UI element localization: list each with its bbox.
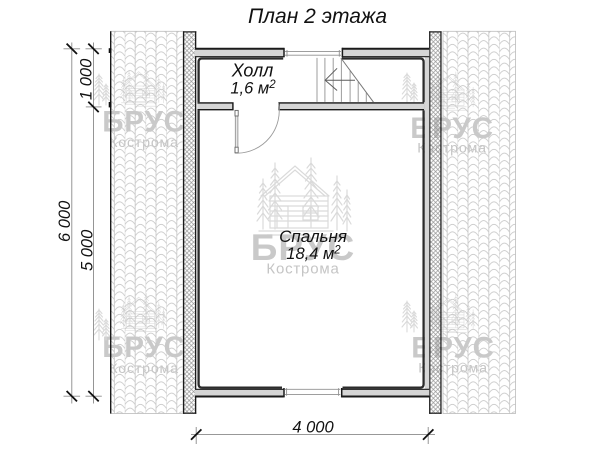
svg-text:6 000: 6 000 — [56, 200, 74, 242]
svg-text:1 000: 1 000 — [78, 58, 96, 100]
svg-text:Спальня: Спальня — [279, 227, 347, 246]
svg-text:18,4 м2: 18,4 м2 — [286, 245, 341, 264]
svg-text:План 2 этажа: План 2 этажа — [248, 5, 387, 28]
svg-text:5 000: 5 000 — [78, 229, 96, 271]
svg-text:4 000: 4 000 — [292, 418, 334, 436]
svg-text:Холл: Холл — [231, 61, 274, 81]
